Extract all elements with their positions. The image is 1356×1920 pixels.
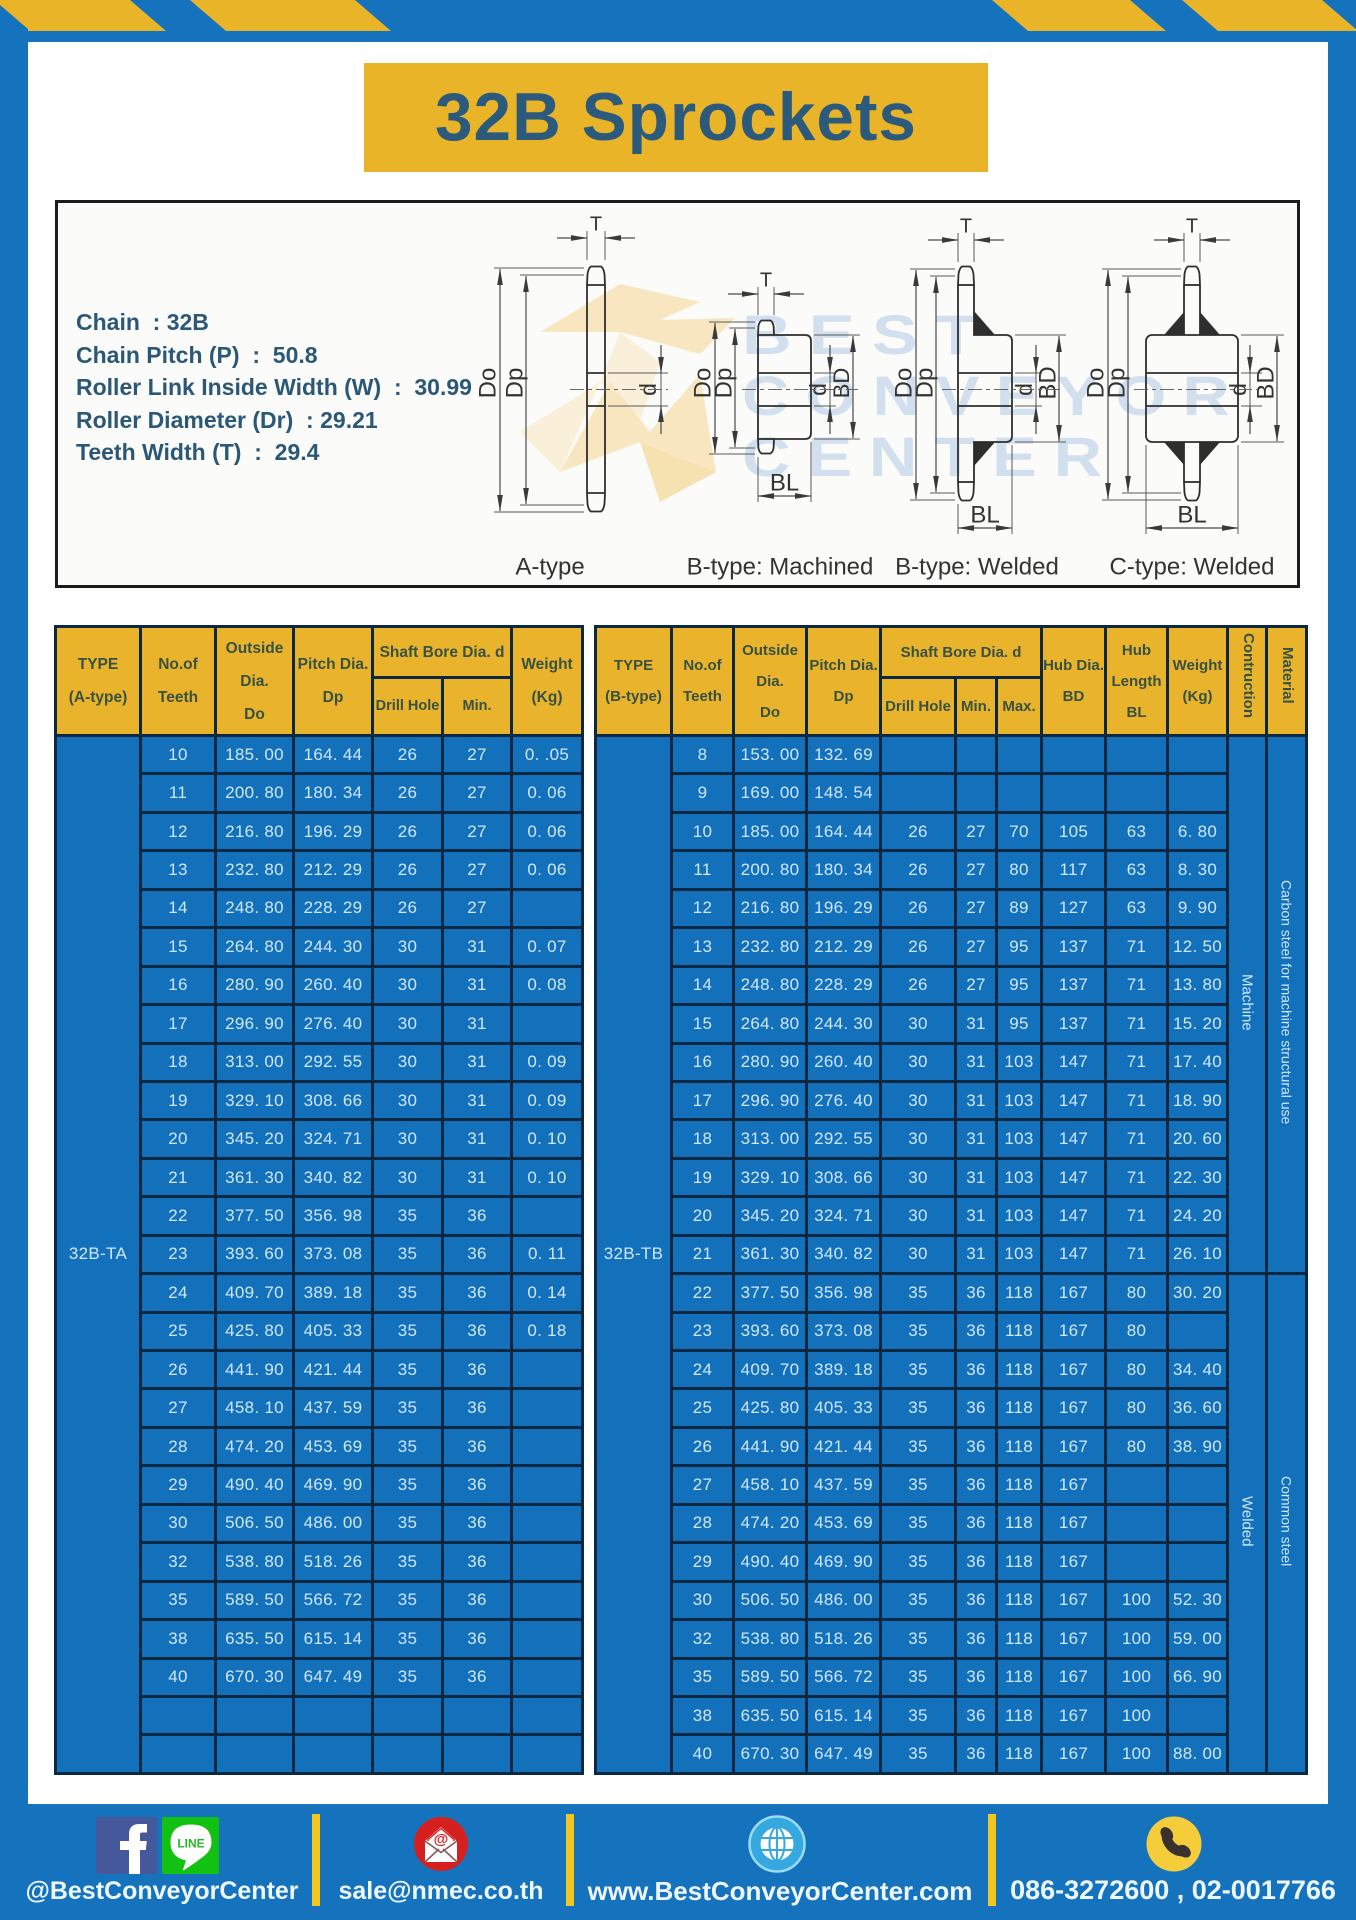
svg-text:Dp: Dp	[1103, 368, 1130, 399]
svg-text:T: T	[960, 215, 972, 237]
svg-text:BD: BD	[829, 368, 854, 399]
svg-text:BL: BL	[970, 501, 999, 528]
svg-text:T: T	[1186, 215, 1198, 237]
svg-text:T: T	[590, 213, 602, 235]
svg-text:T: T	[760, 269, 772, 291]
svg-text:C-type: Welded: C-type: Welded	[1110, 553, 1275, 580]
svg-text:BL: BL	[1177, 501, 1206, 528]
svg-text:B-type: Welded: B-type: Welded	[895, 553, 1059, 580]
svg-text:@: @	[434, 1831, 449, 1848]
svg-text:Dp: Dp	[710, 368, 737, 399]
svg-text:BD: BD	[1252, 366, 1279, 399]
svg-text:Dp: Dp	[911, 368, 938, 399]
svg-text:B-type: Machined: B-type: Machined	[687, 553, 874, 580]
svg-text:Dp: Dp	[501, 368, 528, 399]
svg-text:LINE: LINE	[177, 1837, 204, 1851]
svg-text:BL: BL	[770, 469, 799, 496]
svg-text:BD: BD	[1034, 366, 1061, 399]
svg-text:A-type: A-type	[515, 553, 584, 580]
svg-text:Do: Do	[474, 368, 501, 399]
